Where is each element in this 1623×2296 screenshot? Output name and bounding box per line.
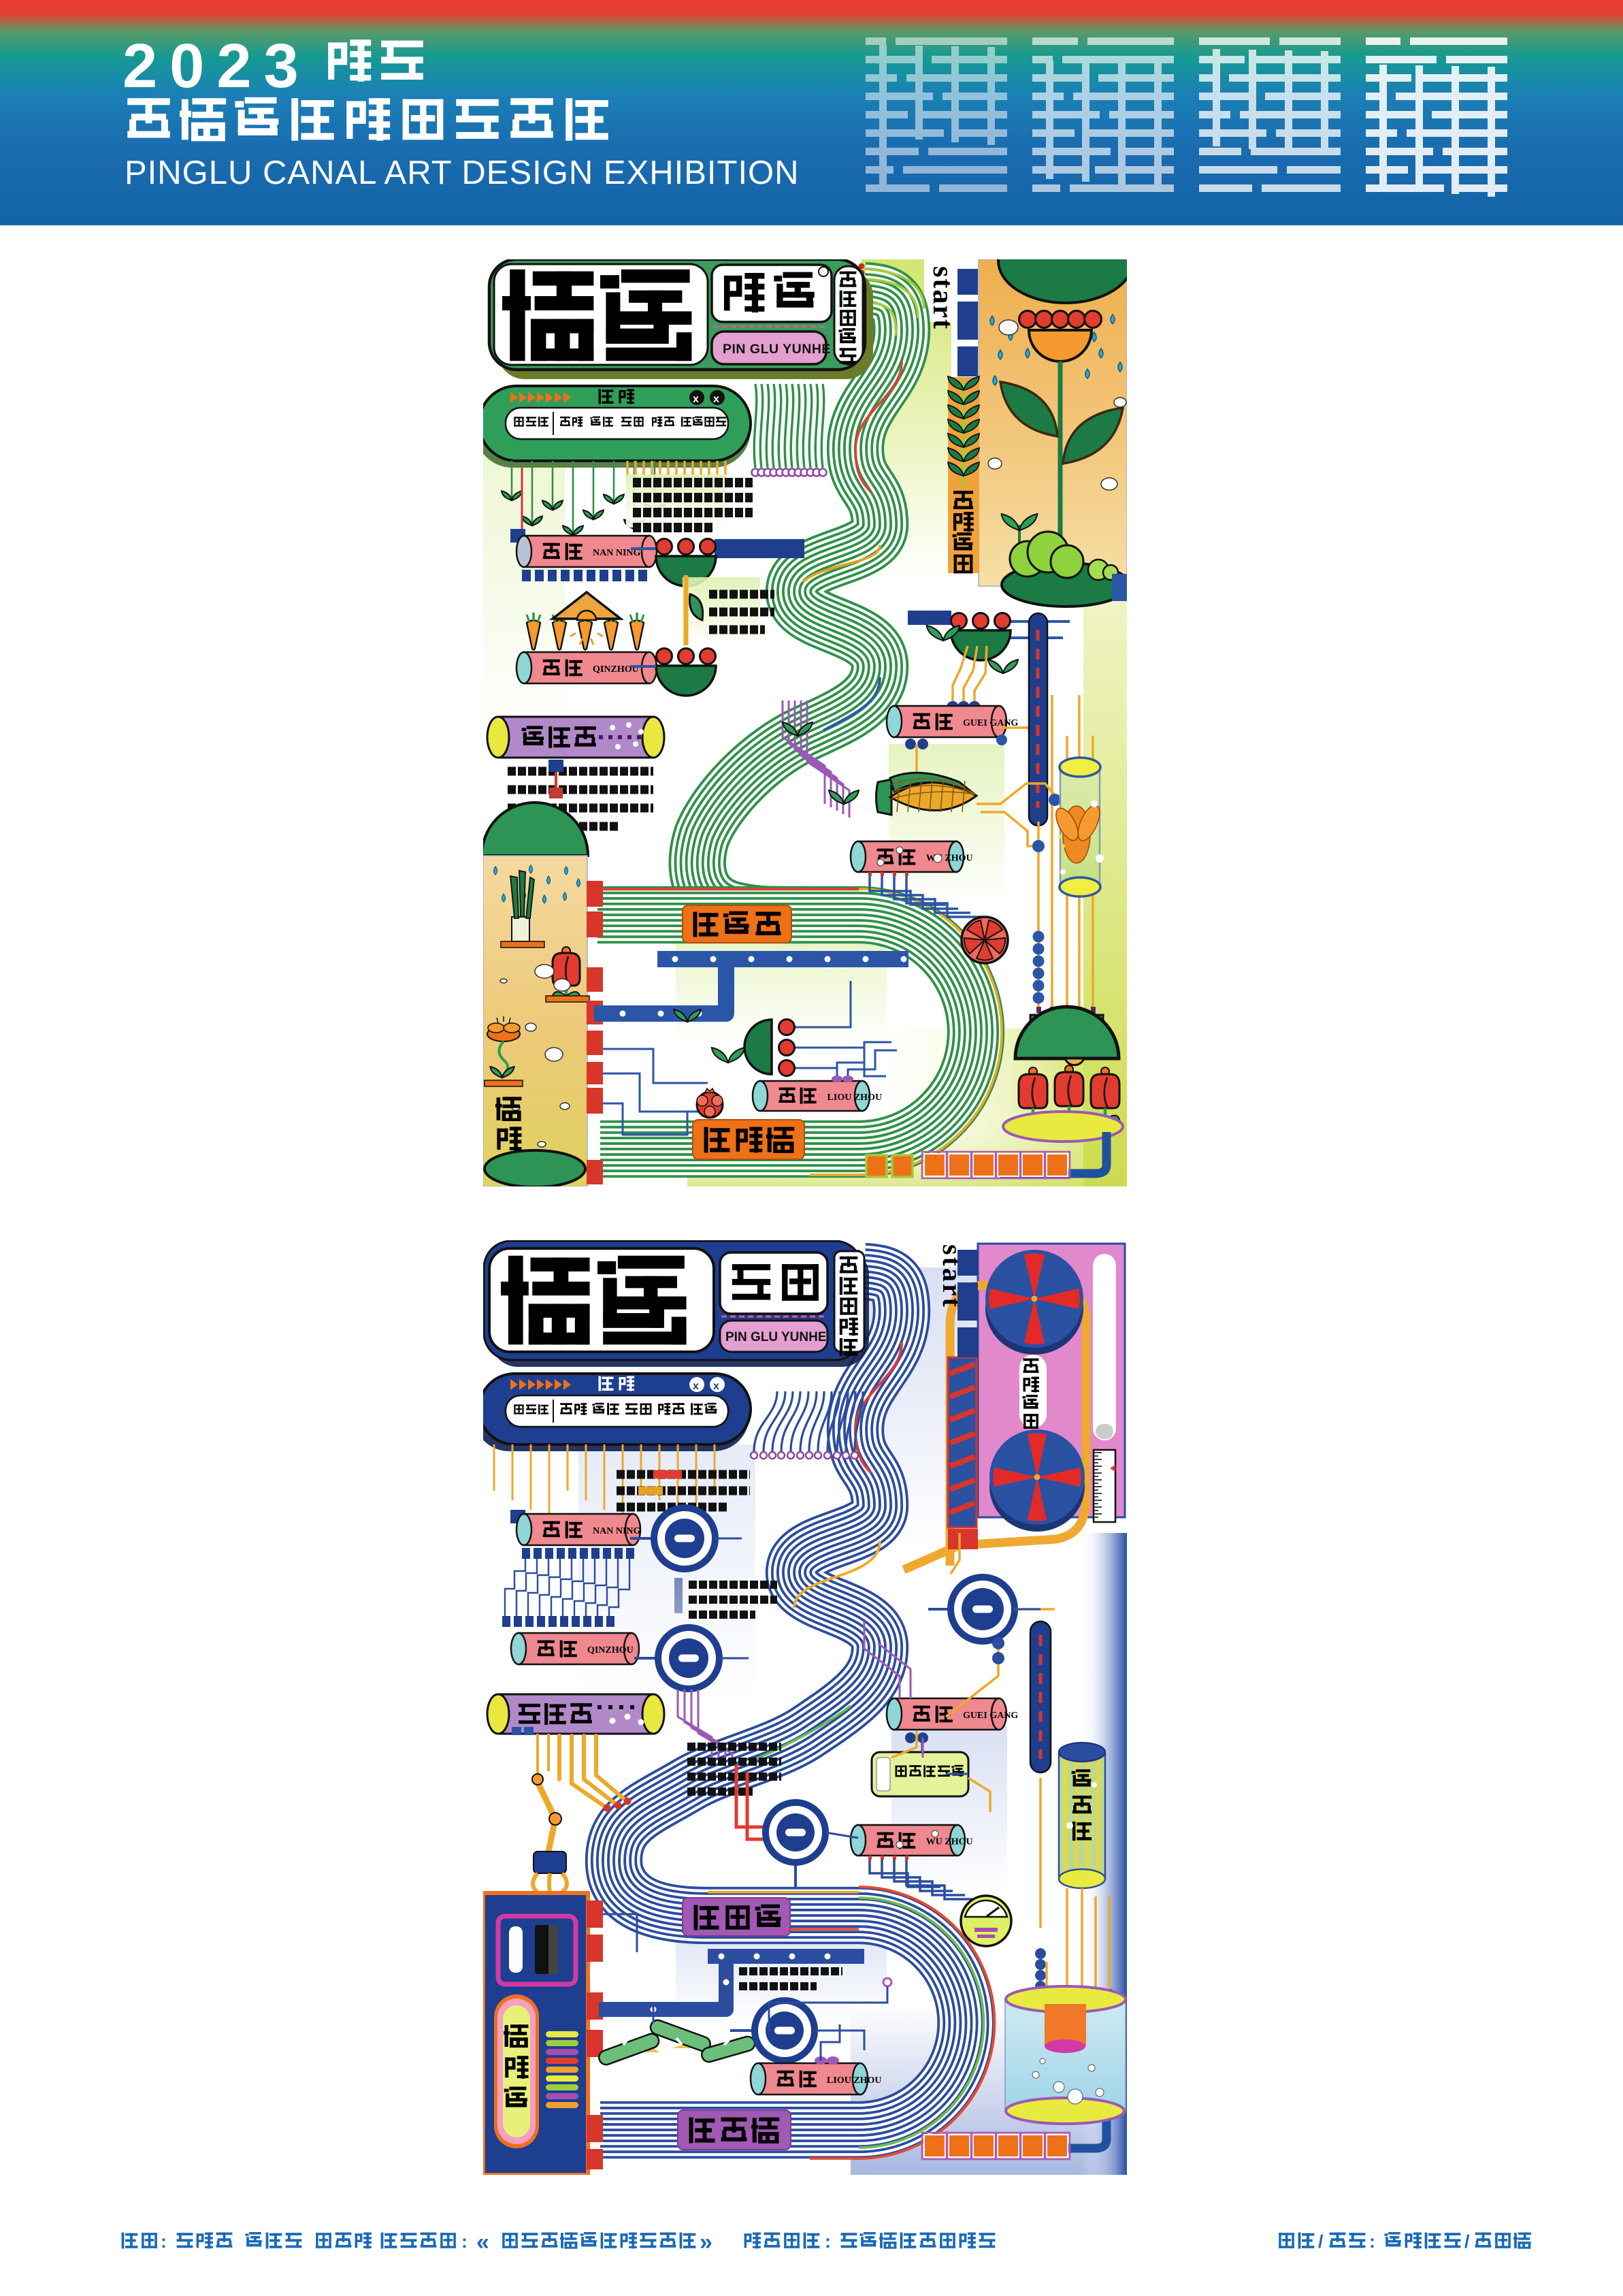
svg-text:/: / — [1318, 2231, 1324, 2252]
svg-text:start: start — [927, 266, 958, 330]
svg-text:x: x — [713, 1380, 719, 1392]
svg-text:NAN NING: NAN NING — [593, 1526, 641, 1536]
svg-text:WU ZHOU: WU ZHOU — [926, 854, 973, 864]
svg-text::: : — [1369, 2231, 1375, 2252]
svg-text:WU ZHOU: WU ZHOU — [926, 1837, 973, 1847]
svg-text:LIOU ZHOU: LIOU ZHOU — [827, 1093, 883, 1103]
svg-text::: : — [161, 2231, 167, 2252]
svg-text:PIN GLU YUNHE: PIN GLU YUNHE — [723, 342, 831, 357]
svg-text:x: x — [693, 1380, 699, 1392]
svg-text:QINZHOU: QINZHOU — [587, 1645, 634, 1655]
svg-text:x: x — [713, 393, 719, 405]
svg-text:»: » — [700, 2229, 712, 2255]
svg-text:x: x — [693, 393, 699, 405]
svg-text::: : — [461, 2231, 468, 2252]
svg-text:PINGLU CANAL ART DESIGN EXHIBI: PINGLU CANAL ART DESIGN EXHIBITION — [125, 155, 800, 191]
svg-text::: : — [825, 2231, 831, 2252]
svg-text:/: / — [1464, 2231, 1470, 2252]
svg-text:2023: 2023 — [122, 31, 311, 101]
svg-text:LIOU ZHOU: LIOU ZHOU — [827, 2075, 882, 2086]
svg-text:GUEI GANG: GUEI GANG — [963, 1711, 1018, 1721]
svg-text:PIN GLU YUNHE: PIN GLU YUNHE — [725, 1330, 827, 1344]
svg-text:«: « — [476, 2229, 489, 2255]
